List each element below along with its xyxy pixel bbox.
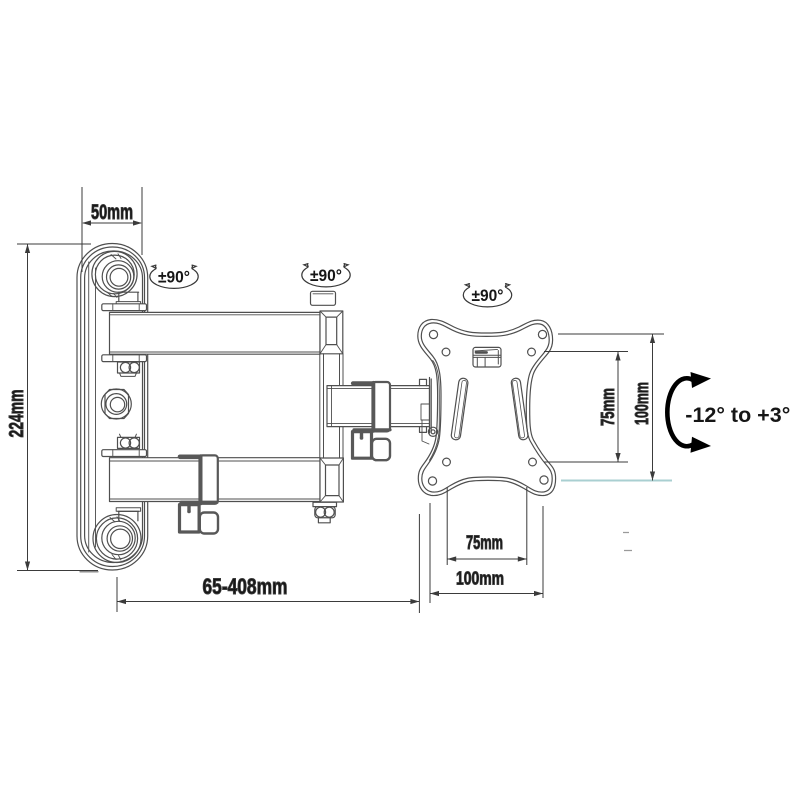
- svg-text:50mm: 50mm: [91, 201, 133, 224]
- svg-text:100mm: 100mm: [456, 568, 504, 589]
- svg-text:-12° to +3°: -12° to +3°: [685, 404, 790, 427]
- svg-text:±90°: ±90°: [310, 267, 342, 285]
- svg-text:65-408mm: 65-408mm: [203, 574, 288, 599]
- svg-text:100mm: 100mm: [631, 382, 652, 425]
- svg-text:224mm: 224mm: [6, 390, 28, 438]
- svg-text:±90°: ±90°: [158, 269, 190, 287]
- svg-text:75mm: 75mm: [466, 533, 503, 554]
- svg-text:±90°: ±90°: [472, 287, 504, 305]
- svg-text:75mm: 75mm: [597, 388, 618, 426]
